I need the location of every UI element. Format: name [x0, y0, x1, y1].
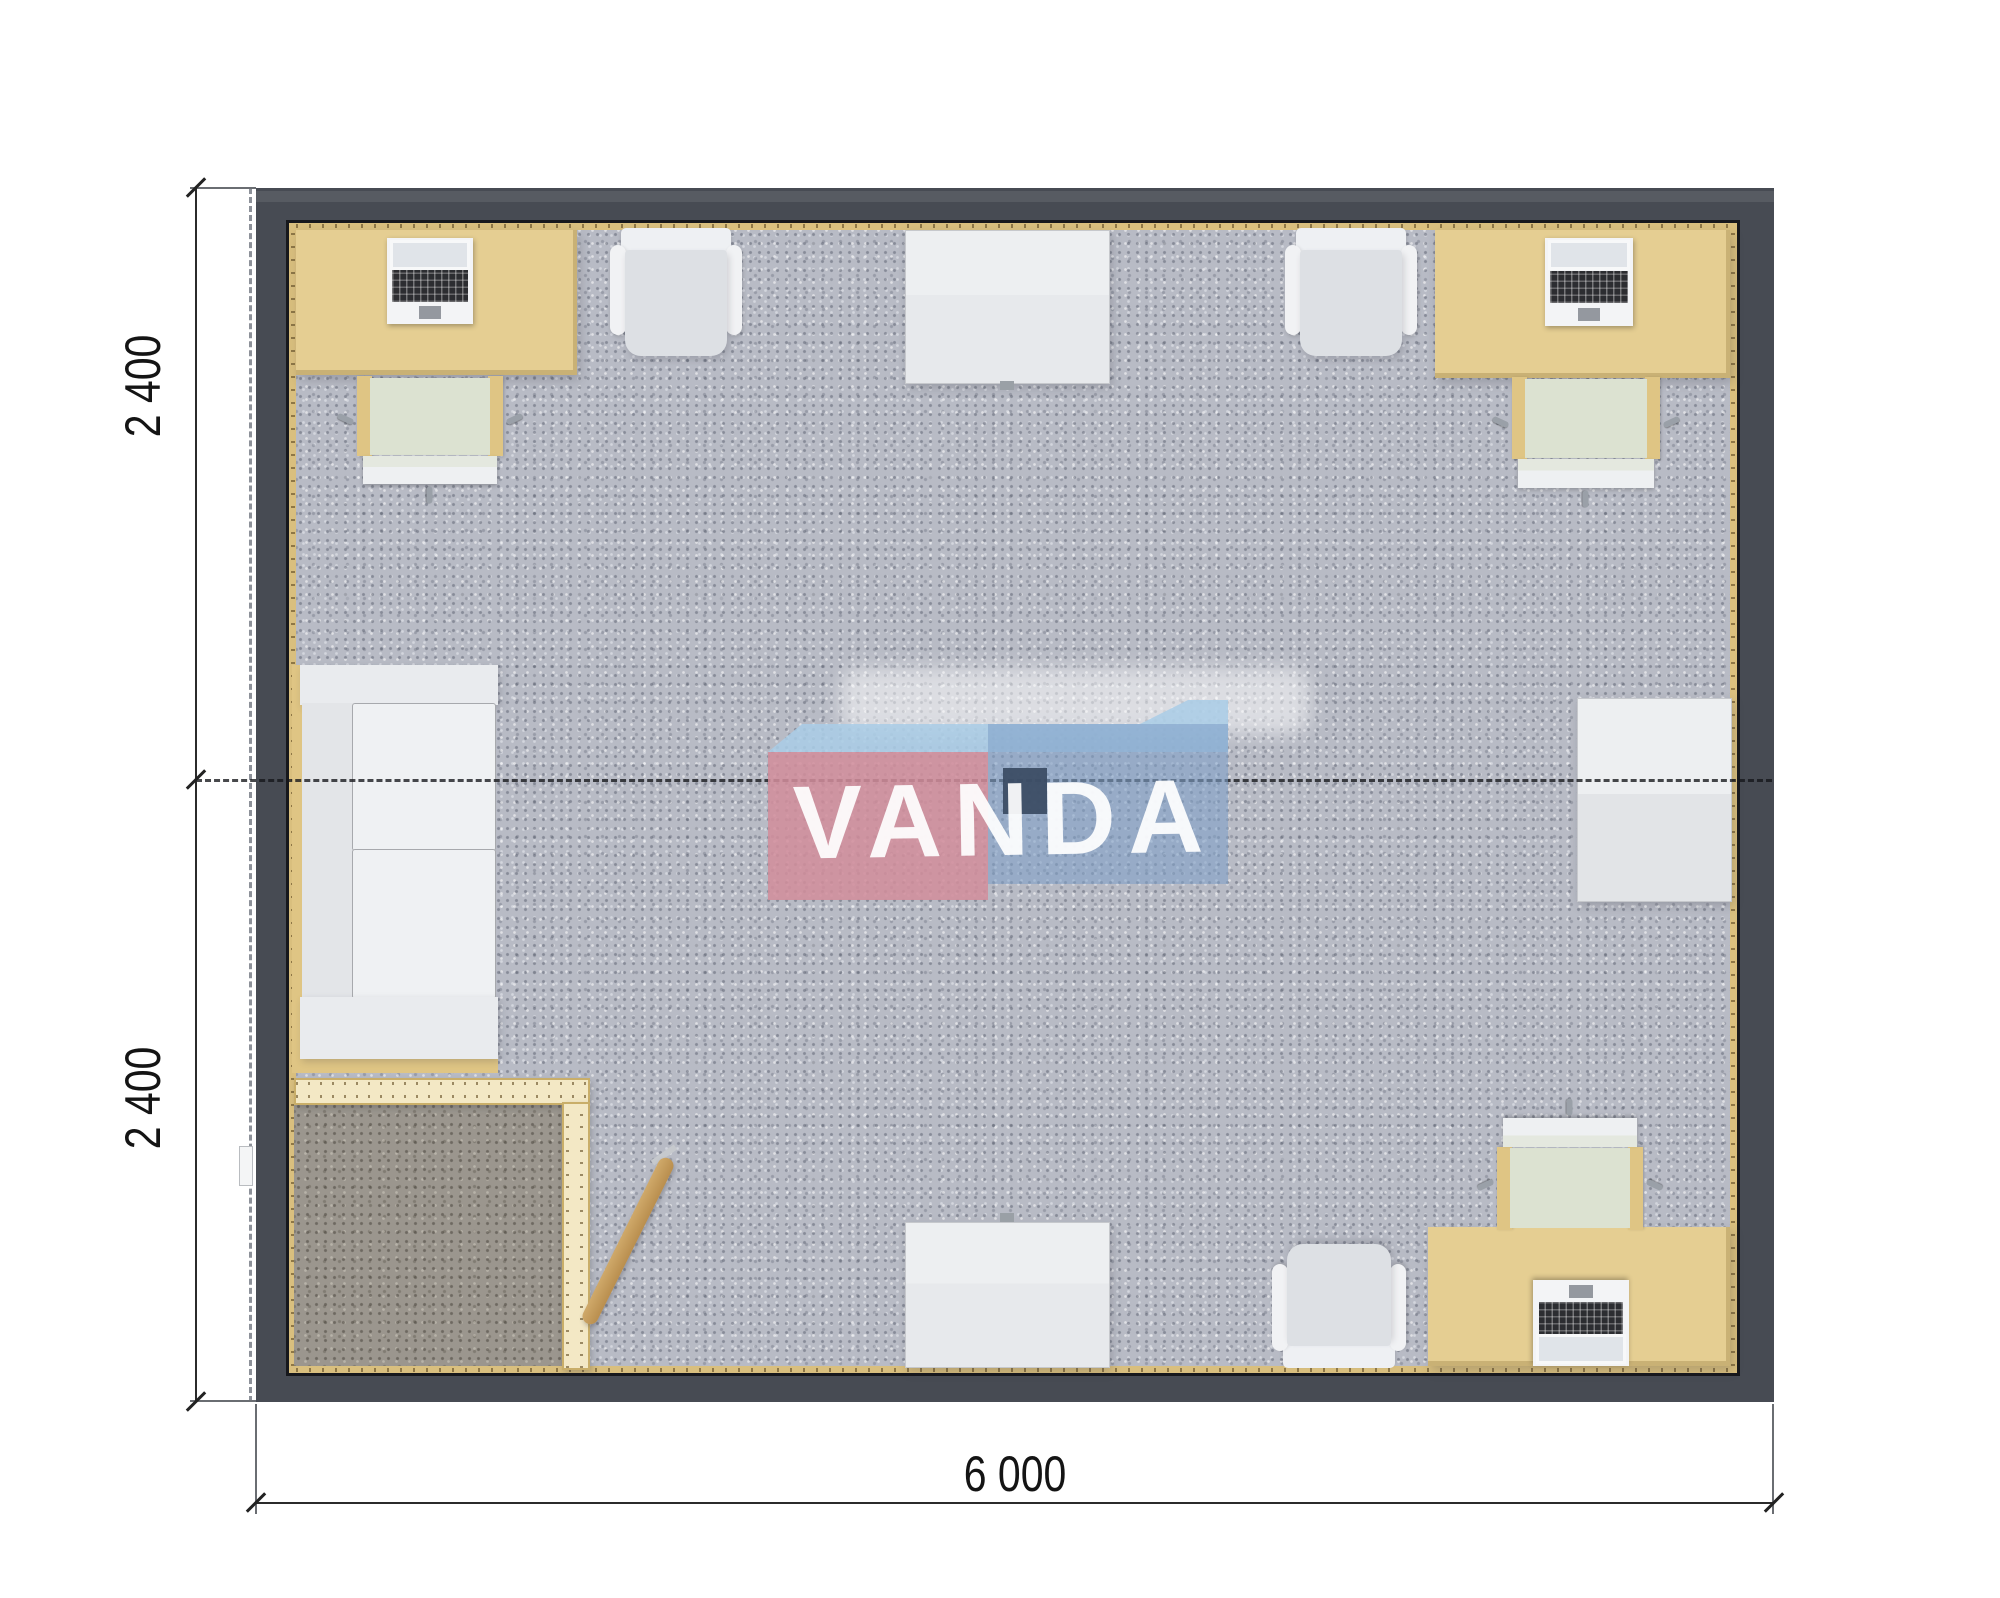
table-leg-notch — [1000, 1213, 1014, 1222]
sofa-backrest — [302, 703, 354, 999]
sofa-wood-base — [292, 1057, 498, 1073]
armchair-seat — [625, 250, 728, 356]
armchair-bottom — [1272, 1240, 1406, 1368]
lining-ticks-bottom — [296, 1368, 1730, 1372]
chair-front-edge — [363, 456, 497, 484]
chair-armrest — [488, 376, 503, 456]
laptop-screen — [1548, 240, 1631, 271]
chair-armrest — [1645, 377, 1660, 459]
lining-ticks-top — [296, 224, 1730, 228]
armchair-back — [621, 228, 732, 253]
extension-line-bottom-left — [190, 1400, 256, 1402]
sofa-cushion — [352, 703, 496, 851]
office-chair-top-left — [357, 376, 503, 484]
chair-seat — [370, 378, 490, 455]
armchair-back — [1283, 1344, 1396, 1368]
floor-plan-canvas: VANDA 2 400 2 400 6 000 — [0, 0, 2000, 1598]
sofa-cushion — [352, 849, 496, 999]
chair-seat — [1525, 379, 1646, 458]
laptop-keyboard — [1550, 271, 1627, 304]
chair-armrest — [1628, 1147, 1643, 1230]
laptop-keyboard — [1539, 1302, 1624, 1334]
extension-line-bottom-l — [255, 1404, 257, 1514]
armchair-arm — [1285, 245, 1301, 335]
office-chair-bottom-right — [1497, 1118, 1643, 1230]
laptop-trackpad — [1578, 308, 1601, 321]
extension-line-bottom-r — [1772, 1404, 1774, 1514]
chair-front-edge — [1518, 459, 1654, 488]
armchair-back — [1296, 228, 1407, 253]
armchair-seat — [1300, 250, 1403, 356]
dimension-label-left-top: 2 400 — [117, 316, 169, 455]
laptop-keyboard — [392, 270, 468, 302]
armchair-arm — [726, 245, 742, 335]
armchair-arm — [610, 245, 626, 335]
table-top-center — [905, 230, 1110, 384]
sofa-armrest-bottom — [300, 997, 498, 1059]
armchair-seat — [1287, 1244, 1392, 1346]
armchair-arm — [1401, 245, 1417, 335]
table-leg-notch — [1000, 381, 1014, 390]
chair-seat — [1510, 1148, 1630, 1228]
laptop-trackpad — [419, 306, 441, 319]
partition-wall-vertical — [562, 1102, 590, 1370]
armchair-top-left — [610, 228, 742, 360]
caster-wheel — [1583, 491, 1589, 508]
laptop-screen — [1536, 1334, 1626, 1364]
logo-wordmark: VANDA — [777, 756, 1231, 884]
laptop-top-left — [387, 238, 473, 324]
laptop-trackpad — [1569, 1285, 1594, 1298]
wall-top-highlight — [256, 191, 1774, 202]
chair-front-edge — [1503, 1118, 1637, 1147]
dimension-line-horizontal — [256, 1502, 1774, 1504]
armchair-top-right — [1285, 228, 1417, 360]
caster-wheel — [427, 487, 433, 504]
extension-line-top — [190, 187, 256, 189]
armchair-arm — [1390, 1264, 1406, 1351]
entry-door-marker — [239, 1146, 253, 1186]
caster-wheel — [1567, 1099, 1573, 1116]
table-right — [1577, 698, 1732, 902]
laptop-top-right — [1545, 238, 1633, 326]
office-chair-top-right — [1512, 377, 1660, 488]
laptop-bottom-right — [1533, 1280, 1629, 1366]
dimension-line-vertical — [195, 188, 197, 1402]
roof-outline-dashed-line — [249, 188, 252, 1402]
dimension-label-left-bottom: 2 400 — [117, 1028, 169, 1167]
entry-room-floor — [294, 1102, 562, 1366]
table-bottom-center — [905, 1222, 1110, 1368]
sofa-armrest-top — [300, 665, 498, 705]
partition-wall-horizontal — [294, 1078, 590, 1105]
dimension-label-bottom: 6 000 — [933, 1448, 1097, 1500]
laptop-screen — [390, 240, 471, 270]
armchair-arm — [1272, 1264, 1288, 1351]
